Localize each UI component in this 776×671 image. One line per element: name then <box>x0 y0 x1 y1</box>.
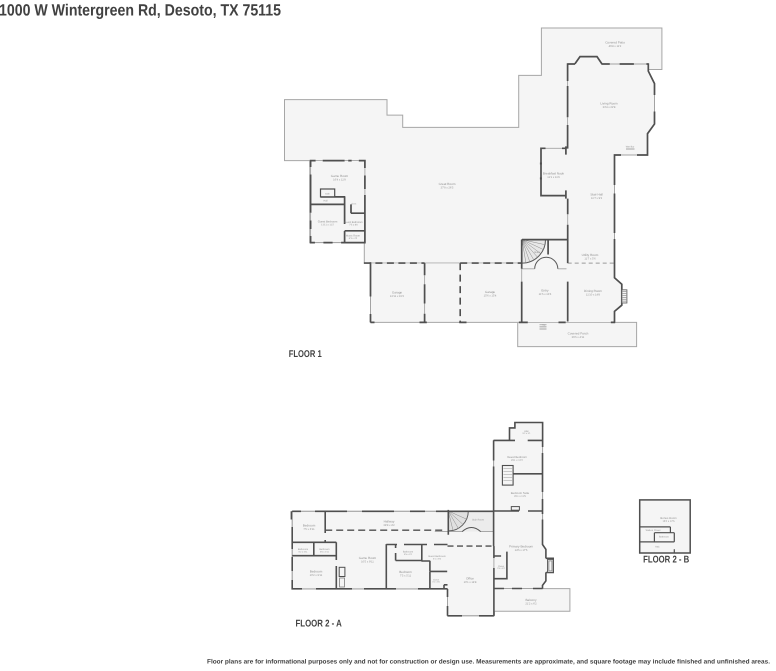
svg-text:Covered Porch: Covered Porch <box>568 332 589 336</box>
svg-text:10'5 x 9'11: 10'5 x 9'11 <box>361 560 374 563</box>
svg-text:2'5 x 5'2: 2'5 x 5'2 <box>497 567 505 570</box>
svg-text:5'1 x 5'6: 5'1 x 5'6 <box>433 557 442 560</box>
svg-text:21'2 x 6'2: 21'2 x 6'2 <box>525 603 537 606</box>
svg-text:Bedroom: Bedroom <box>303 524 316 528</box>
svg-text:1000 W Wintergreen Rd, Desoto,: 1000 W Wintergreen Rd, Desoto, TX 75115 <box>0 1 281 19</box>
svg-text:5'6 x 4'11: 5'6 x 4'11 <box>320 551 330 554</box>
svg-text:FLOOR 2 - B: FLOOR 2 - B <box>643 555 689 566</box>
svg-text:Stair Hall: Stair Hall <box>590 192 603 196</box>
svg-text:6'3 x 4'2: 6'3 x 4'2 <box>349 237 358 240</box>
svg-text:15'6 x 15'4: 15'6 x 15'4 <box>484 294 497 297</box>
svg-text:37'9 x 26'5: 37'9 x 26'5 <box>441 186 454 189</box>
svg-text:10'2 x 9'11: 10'2 x 9'11 <box>310 574 323 577</box>
svg-text:39'9 x 4'2: 39'9 x 4'2 <box>383 524 395 527</box>
svg-text:11'1 x 11'6: 11'1 x 11'6 <box>547 176 560 179</box>
svg-text:Breakfast Nook: Breakfast Nook <box>543 172 565 176</box>
svg-text:Balcony: Balcony <box>525 598 536 602</box>
svg-text:15'2 x 12'5: 15'2 x 12'5 <box>663 520 676 523</box>
svg-text:Living Room: Living Room <box>600 102 618 106</box>
svg-text:Great Room: Great Room <box>439 182 456 186</box>
svg-text:8'11 x 11'5: 8'11 x 11'5 <box>514 495 526 498</box>
svg-text:46'8 x 11'2: 46'8 x 11'2 <box>609 45 622 48</box>
svg-text:14'5 x 17'5: 14'5 x 17'5 <box>515 549 528 552</box>
svg-text:5'2 x 3'1: 5'2 x 3'1 <box>522 432 531 435</box>
svg-text:Floor plans are for informatio: Floor plans are for informational purpos… <box>207 658 770 665</box>
svg-text:23'4 x 22'8: 23'4 x 22'8 <box>603 106 616 109</box>
svg-text:7'5 x 8'0: 7'5 x 8'0 <box>349 224 358 227</box>
svg-text:Utility Room: Utility Room <box>582 253 599 257</box>
svg-text:Game Room: Game Room <box>359 556 377 560</box>
svg-text:10'1 x 14'8: 10'1 x 14'8 <box>464 581 477 584</box>
svg-text:7'5 x 6'11: 7'5 x 6'11 <box>303 528 315 531</box>
svg-text:Dining Room: Dining Room <box>584 289 602 293</box>
svg-text:FLOOR 1: FLOOR 1 <box>289 349 322 360</box>
svg-text:Hallway: Hallway <box>384 520 395 524</box>
svg-text:5'2 x 4'11: 5'2 x 4'11 <box>298 551 308 554</box>
svg-text:Covered Patio: Covered Patio <box>605 41 625 45</box>
svg-text:Stairs: Stairs <box>534 251 541 254</box>
svg-text:Office: Office <box>466 576 474 580</box>
svg-text:Game Room: Game Room <box>331 174 349 178</box>
svg-text:Bath: Bath <box>325 192 330 195</box>
svg-text:Wet Bar: Wet Bar <box>626 145 635 148</box>
svg-text:11'5 x 13'6: 11'5 x 13'6 <box>539 293 552 296</box>
svg-text:FLOOR 2 - A: FLOOR 2 - A <box>296 618 342 629</box>
svg-text:11'11 x 11'2: 11'11 x 11'2 <box>321 224 334 227</box>
svg-text:Linen: Linen <box>351 202 357 205</box>
svg-text:11'7 x 5'6: 11'7 x 5'6 <box>584 258 596 261</box>
svg-text:3'1 x 3'5: 3'1 x 3'5 <box>432 581 440 584</box>
svg-text:16'4 x 11'9: 16'4 x 11'9 <box>333 178 346 181</box>
svg-text:Stair Room: Stair Room <box>472 518 484 521</box>
svg-text:Bedroom: Bedroom <box>399 570 412 574</box>
svg-text:Bedroom: Bedroom <box>310 570 323 574</box>
svg-text:Bathroom: Bathroom <box>659 535 669 538</box>
svg-text:7'5 x 5'11: 7'5 x 5'11 <box>400 574 412 577</box>
svg-text:11'10 x 14'8: 11'10 x 14'8 <box>586 294 601 297</box>
svg-text:Entry: Entry <box>541 289 549 293</box>
svg-text:26'5 x 4'11: 26'5 x 4'11 <box>572 336 585 339</box>
svg-text:Primary Bedroom: Primary Bedroom <box>509 545 533 549</box>
svg-text:8'11 x 12'2: 8'11 x 12'2 <box>511 459 523 462</box>
svg-text:Guest Bathroom: Guest Bathroom <box>344 221 362 224</box>
svg-text:Walk-in Closet: Walk-in Closet <box>646 529 661 532</box>
svg-text:Garage: Garage <box>485 290 496 294</box>
svg-text:13'11 x 15'2: 13'11 x 15'2 <box>390 295 405 298</box>
svg-text:Hall: Hall <box>323 200 328 203</box>
svg-text:11'7 x 9'2: 11'7 x 9'2 <box>591 197 603 200</box>
svg-text:Garage: Garage <box>392 290 403 294</box>
svg-text:5'5 x 3'2: 5'5 x 3'2 <box>404 553 413 556</box>
